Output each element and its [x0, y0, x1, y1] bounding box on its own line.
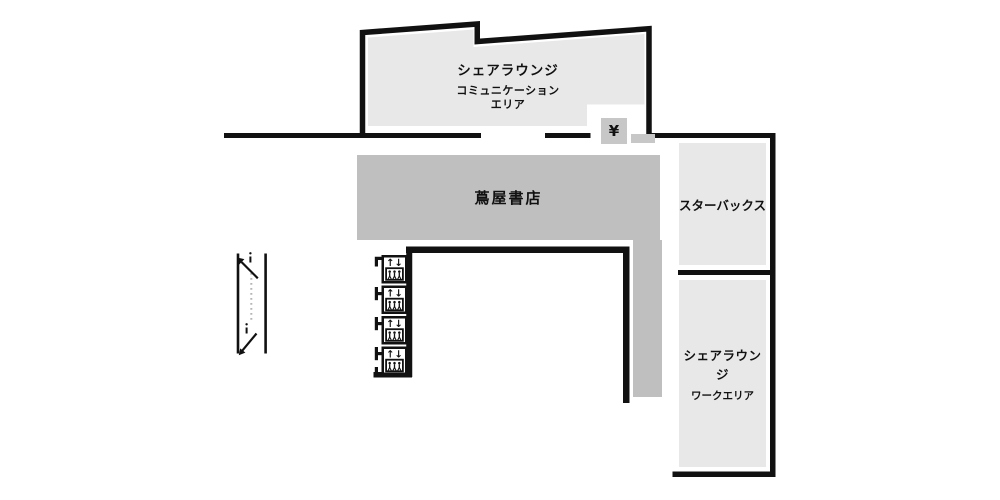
share-lounge-communication-subtitle2: エリア: [378, 98, 638, 112]
escalator-icon: [237, 252, 266, 355]
floor-map: ↑↓: [0, 0, 1000, 500]
starbucks-label: スターバックス: [679, 195, 766, 214]
pay-machine-icon: ¥: [601, 118, 627, 144]
share-lounge-communication-subtitle1: コミュニケーション: [378, 84, 638, 98]
share-lounge-work-title: シェアラウンジ: [679, 345, 766, 383]
area-starbucks: スターバックス: [679, 143, 766, 265]
elevator-icon: [383, 317, 407, 343]
pay-machine-counter: [631, 134, 655, 143]
share-lounge-work-subtitle: ワークエリア: [691, 388, 754, 403]
elevator-icon: [383, 256, 407, 282]
wall-elevator-comb: [376, 258, 386, 374]
elevator-icon: [383, 348, 407, 374]
pay-machine-label: ¥: [609, 122, 619, 140]
tsutaya-books-label: 蔦屋書店: [474, 187, 542, 208]
area-share-lounge-communication: シェアラウンジ コミュニケーション エリア: [378, 59, 638, 112]
area-tsutaya-books: 蔦屋書店: [357, 155, 660, 240]
area-tsutaya-books-wing: [633, 240, 662, 397]
share-lounge-communication-title: シェアラウンジ: [378, 59, 638, 79]
elevator-icon: [383, 287, 407, 313]
elevator-bank: [383, 256, 407, 374]
area-share-lounge-work: シェアラウンジ ワークエリア: [679, 280, 766, 467]
